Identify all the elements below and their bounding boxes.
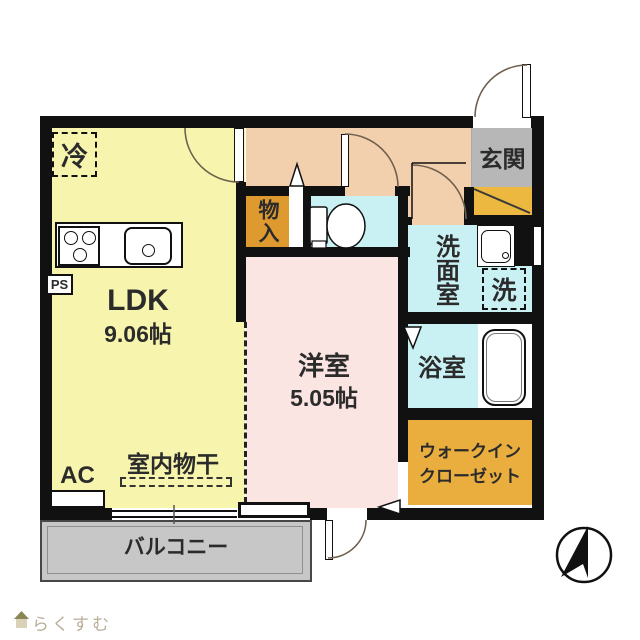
stove-burner xyxy=(82,231,96,245)
wall-bottom-right xyxy=(367,508,544,520)
stove-burner xyxy=(64,231,78,245)
label-fridge: 冷 xyxy=(52,132,97,177)
label-storage: 物入 xyxy=(249,197,285,247)
floor-plan: 冷 LDK 9.06帖 室内物干 AC PS 物入 玄関 洗面室 洗 浴室 洋室… xyxy=(0,0,640,640)
wall-top-left xyxy=(40,116,473,128)
entrance-door-arc xyxy=(475,65,527,117)
balcony-sliding-window xyxy=(112,510,237,518)
western-exterior-door-leaf xyxy=(325,520,333,560)
wall-entrance-bottom xyxy=(464,215,532,225)
washroom-side-window xyxy=(533,226,542,266)
wall-sink-block xyxy=(515,225,532,266)
bathtub-inner-line xyxy=(486,333,522,402)
label-washer: 洗 xyxy=(482,268,526,310)
label-wic-line1: ウォークイン xyxy=(408,437,532,461)
label-balcony: バルコニー xyxy=(116,533,236,559)
wall-washroom-top xyxy=(398,217,412,225)
label-indoor-drying: 室内物干 xyxy=(110,450,236,474)
entrance-hall-divider xyxy=(471,128,472,187)
label-western-area: 5.05帖 xyxy=(280,383,368,409)
stove-burner xyxy=(73,248,87,262)
wall-center-column xyxy=(398,186,408,462)
label-washroom: 洗面室 xyxy=(427,228,463,312)
ldk-door-leaf xyxy=(234,128,244,182)
label-ac: AC xyxy=(50,463,105,488)
ac-unit xyxy=(50,490,105,508)
wall-right xyxy=(532,116,544,520)
western-exterior-door-arc xyxy=(328,520,366,558)
label-ps: PS xyxy=(46,274,73,295)
storage-door-gap xyxy=(289,186,303,247)
entrance-step xyxy=(472,187,532,215)
wall-bottom-mid xyxy=(310,508,327,520)
label-western: 洋室 xyxy=(288,349,360,379)
label-entrance: 玄関 xyxy=(473,143,532,171)
label-ldk-area: 9.06帖 xyxy=(88,319,188,345)
house-logo-icon xyxy=(14,611,29,628)
wall-bathroom-top xyxy=(398,312,532,324)
ldk-western-dashed-boundary xyxy=(244,322,247,503)
label-wic-line2: クローゼット xyxy=(408,462,532,486)
wall-bottom-ldk xyxy=(40,508,112,520)
kitchen-faucet xyxy=(142,244,155,257)
wall-storage-top xyxy=(236,186,289,196)
wall-toilet-top xyxy=(303,186,345,196)
north-compass-icon xyxy=(557,526,611,582)
wall-toilet-left xyxy=(303,196,311,247)
wall-toilet-bottom xyxy=(236,247,410,257)
label-bathroom: 浴室 xyxy=(406,351,478,379)
entrance-door-leaf xyxy=(522,64,531,118)
toilet-door-leaf xyxy=(341,134,349,187)
vanity-faucet xyxy=(502,252,509,259)
watermark-brand: らくすむ xyxy=(32,610,112,635)
room-toilet xyxy=(311,196,398,247)
wall-wic-top xyxy=(398,408,532,420)
bathtub xyxy=(482,329,526,406)
wall-left xyxy=(40,116,52,520)
western-window-box xyxy=(238,502,310,518)
label-ldk: LDK xyxy=(88,285,188,317)
